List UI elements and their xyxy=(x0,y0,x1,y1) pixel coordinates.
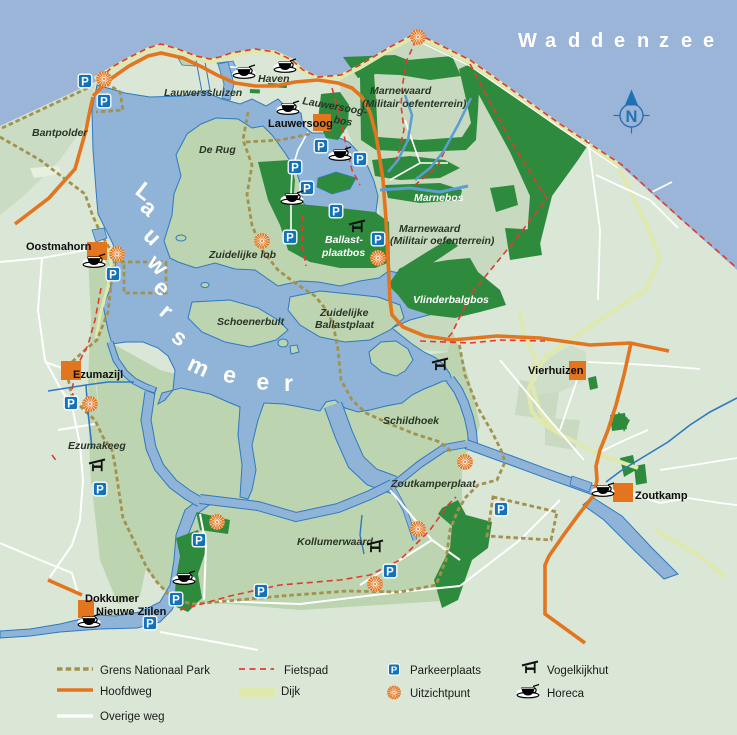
svg-text:plaatbos: plaatbos xyxy=(321,247,365,259)
svg-text:Zoutkamp: Zoutkamp xyxy=(635,490,688,502)
svg-text:Ezumazijl: Ezumazijl xyxy=(73,369,123,381)
svg-text:Vogelkijkhut: Vogelkijkhut xyxy=(547,665,609,677)
svg-text:Marnebos: Marnebos xyxy=(414,192,464,204)
svg-text:Dokkumer: Dokkumer xyxy=(85,593,140,605)
svg-text:e: e xyxy=(681,30,692,52)
svg-text:(Militair oefenterrein): (Militair oefenterrein) xyxy=(362,98,467,110)
svg-text:Haven: Haven xyxy=(258,73,290,85)
svg-text:N: N xyxy=(626,108,638,126)
svg-text:a: a xyxy=(545,30,557,52)
svg-text:n: n xyxy=(637,30,649,52)
svg-text:d: d xyxy=(568,30,580,52)
svg-text:Zoutkamperplaat: Zoutkamperplaat xyxy=(390,478,476,490)
svg-text:Zuidelijke: Zuidelijke xyxy=(319,307,369,319)
svg-text:Marnewaard: Marnewaard xyxy=(399,223,461,235)
svg-text:W: W xyxy=(518,30,537,52)
svg-text:Hoofdweg: Hoofdweg xyxy=(100,686,152,698)
svg-text:Parkeerplaats: Parkeerplaats xyxy=(410,665,481,677)
svg-text:Marnewaard: Marnewaard xyxy=(370,85,432,97)
svg-text:Vlinderbalgbos: Vlinderbalgbos xyxy=(413,294,489,306)
svg-text:r: r xyxy=(284,370,293,396)
svg-text:Vierhuizen: Vierhuizen xyxy=(528,365,584,377)
svg-text:e: e xyxy=(703,30,714,52)
svg-text:e: e xyxy=(614,30,625,52)
svg-text:Ezumakeeg: Ezumakeeg xyxy=(68,440,126,452)
svg-text:e: e xyxy=(256,368,271,395)
svg-text:Bantpolder: Bantpolder xyxy=(32,127,88,139)
svg-text:Lauwersoog: Lauwersoog xyxy=(268,118,333,130)
svg-text:Kollumerwaard: Kollumerwaard xyxy=(297,536,373,548)
svg-text:Oostmahorn: Oostmahorn xyxy=(26,241,92,253)
svg-text:z: z xyxy=(659,30,669,52)
svg-text:Lauwerssluizen: Lauwerssluizen xyxy=(164,87,242,99)
svg-text:Zuidelijke lob: Zuidelijke lob xyxy=(208,249,277,261)
svg-text:Ballastplaat: Ballastplaat xyxy=(315,319,374,331)
svg-text:Horeca: Horeca xyxy=(547,688,585,700)
svg-text:(Militair oefenterrein): (Militair oefenterrein) xyxy=(390,235,495,247)
svg-text:Schildhoek: Schildhoek xyxy=(383,415,440,427)
svg-text:Fietspad: Fietspad xyxy=(284,665,328,677)
svg-text:Dijk: Dijk xyxy=(281,686,300,698)
svg-text:De Rug: De Rug xyxy=(199,144,236,156)
svg-text:Uitzichtpunt: Uitzichtpunt xyxy=(410,688,471,700)
svg-text:Ballast-: Ballast- xyxy=(325,234,363,246)
svg-text:d: d xyxy=(591,30,603,52)
svg-text:Grens Nationaal Park: Grens Nationaal Park xyxy=(100,665,210,677)
svg-text:Schoenerbult: Schoenerbult xyxy=(217,316,285,328)
svg-text:Overige weg: Overige weg xyxy=(100,711,165,723)
